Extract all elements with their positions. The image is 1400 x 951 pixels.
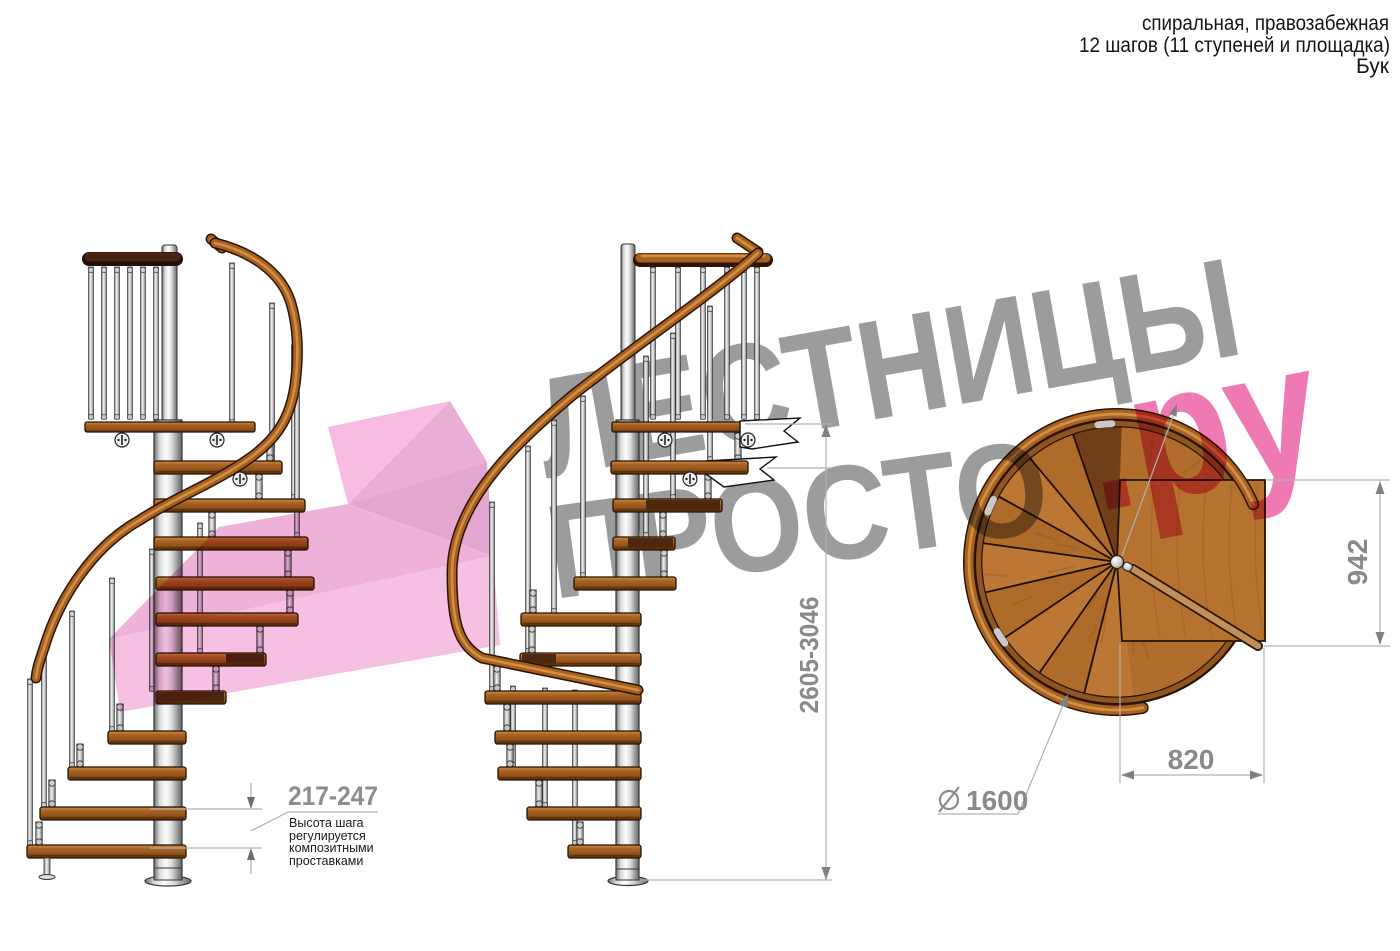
svg-text:217-247: 217-247 <box>288 781 378 811</box>
svg-text:Бук: Бук <box>1356 55 1390 78</box>
svg-text:.ру: .ру <box>1065 303 1336 551</box>
svg-text:12 шагов (11 ступеней и площад: 12 шагов (11 ступеней и площадка) <box>1079 34 1390 57</box>
svg-text:2605-3046: 2605-3046 <box>794 597 824 714</box>
svg-text:942: 942 <box>1342 539 1373 586</box>
svg-text:Высота шага: Высота шага <box>289 816 364 830</box>
svg-text:композитными: композитными <box>289 841 374 855</box>
svg-text:проставками: проставками <box>289 854 363 868</box>
svg-text:820: 820 <box>1168 744 1215 775</box>
svg-text:1600: 1600 <box>966 785 1028 816</box>
svg-text:спиральная, правозабежная: спиральная, правозабежная <box>1142 12 1389 35</box>
